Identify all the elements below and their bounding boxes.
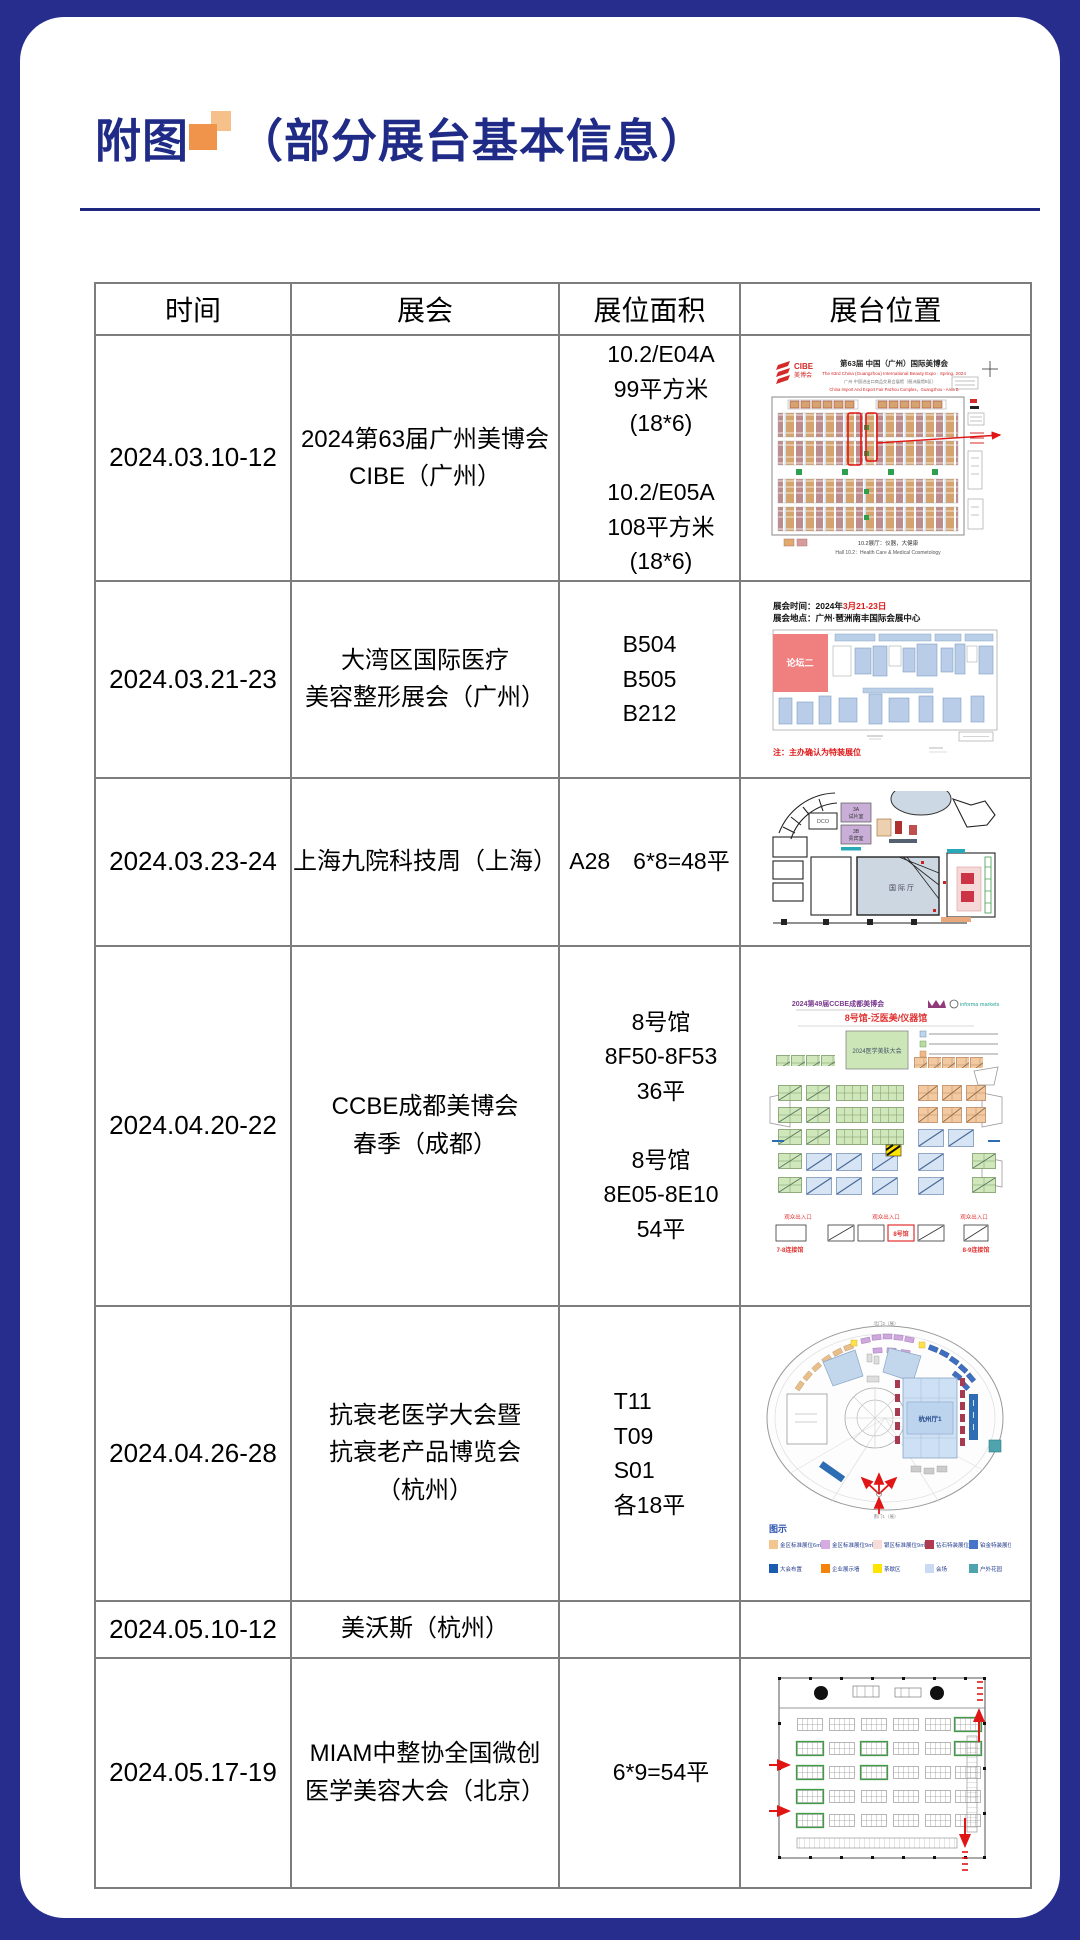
col-header-location: 展台位置: [740, 283, 1031, 335]
cibe-floorplan: CIBE 美博会 第63届 中国（广州）国际美博会 The 63rd China…: [766, 355, 1006, 561]
row4-area: 8号馆 8F50-8F53 36平 8号馆 8E05-8E10 54平: [559, 946, 740, 1306]
left-room: [787, 1394, 827, 1444]
svg-text:3B: 3B: [852, 829, 859, 835]
row6-date: 2024.05.10-12: [95, 1601, 291, 1658]
row7-event: MIAM中整协全国微创 医学美容大会（北京）: [291, 1658, 559, 1888]
row1-floorplan-cell: CIBE 美博会 第63届 中国（广州）国际美博会 The 63rd China…: [740, 335, 1031, 581]
svg-text:10.2展厅：仪器，大健康: 10.2展厅：仪器，大健康: [857, 539, 918, 547]
ninth-floorplan: DCO 3A 试片室 3B 贵宾室: [771, 791, 1001, 933]
table-row: 2024.03.21-23 大湾区国际医疗 美容整形展会（广州） B504 B5…: [95, 581, 1031, 778]
row5-floorplan-cell: 北门2（展）: [740, 1306, 1031, 1601]
compass-icon: [982, 361, 998, 377]
cibe-title: 第63届 中国（广州）国际美博会: [840, 358, 948, 368]
page-title-prefix: 附图: [95, 105, 189, 171]
bottom-piers: [781, 919, 917, 925]
cibe-venue: 广州·中国进出口商品交易会展馆（琶洲展馆B区）: [843, 378, 935, 385]
legend-row-1: 金区标准展位6㎡ 金区标准展位9㎡ 银区标准展位9㎡ 钻石特装展位 铂金特装展位: [769, 1540, 1011, 1549]
main-hall: 国际厅: [857, 857, 939, 915]
svg-text:试片室: 试片室: [848, 813, 863, 820]
ccbe-floorplan: 2024第49届CCBE成都美博会 informa markets 8号馆-泛医…: [768, 997, 1004, 1255]
row3-area: A28 6*8=48平: [559, 778, 740, 946]
plan-legend: 10.2展厅：仪器，大健康 Hall 10.2：Health Care & Me…: [784, 539, 941, 556]
ccbe-title: 2024第49届CCBE成都美博会: [791, 999, 884, 1008]
svg-text:观众出入口: 观众出入口: [872, 1213, 900, 1221]
cibe-logo-icon: CIBE 美博会: [776, 361, 814, 384]
svg-text:贵宾室: 贵宾室: [848, 835, 863, 842]
row2-area: B504 B505 B212: [559, 581, 740, 778]
svg-text:茶歇区: 茶歇区: [884, 1565, 901, 1573]
svg-text:Hall 10.2：Health Care & Medica: Hall 10.2：Health Care & Medical Cosmetol…: [835, 550, 941, 556]
svg-text:南门1（展）: 南门1（展）: [873, 1513, 898, 1520]
svg-text:金区标准展位6㎡: 金区标准展位6㎡: [780, 1541, 822, 1549]
page: { "header": { "title_prefix": "附图", "tit…: [0, 0, 1080, 1940]
row2-floorplan-cell: 展会时间：2024年3月21-23日 展会地点：广州·琶洲南丰国际会展中心 论坛…: [740, 581, 1031, 778]
row5-date: 2024.04.26-28: [95, 1306, 291, 1601]
row3-date: 2024.03.23-24: [95, 778, 291, 946]
row5-area: T11 T09 S01 各18平: [559, 1306, 740, 1601]
svg-text:8-9连接馆: 8-9连接馆: [962, 1246, 989, 1254]
row2-date: 2024.03.21-23: [95, 581, 291, 778]
miam-floorplan: [769, 1672, 1003, 1874]
svg-text:8号馆: 8号馆: [893, 1230, 908, 1238]
booth-info-table: 时间 展会 展位面积 展台位置 2024.03.10-12 2024第63届广州…: [94, 282, 1032, 1889]
bottom-booth-strip: [797, 1838, 957, 1848]
right-booth-strip: [967, 1736, 977, 1832]
room-3a: 3A 试片室: [841, 803, 871, 822]
row6-area: [559, 1601, 740, 1658]
table-row: 2024.05.10-12 美沃斯（杭州）: [95, 1601, 1031, 1658]
svg-text:7-8连接馆: 7-8连接馆: [776, 1246, 803, 1254]
svg-text:3A: 3A: [852, 807, 859, 813]
row4-floorplan-cell: 2024第49届CCBE成都美博会 informa markets 8号馆-泛医…: [740, 946, 1031, 1306]
table-row: 2024.03.23-24 上海九院科技周（上海） A28 6*8=48平: [95, 778, 1031, 946]
svg-text:钻石特装展位: 钻石特装展位: [936, 1541, 970, 1549]
cibe-venue-en: China Import And Export Fair Pazhou Comp…: [829, 387, 958, 393]
row4-event: CCBE成都美博会 春季（成都）: [291, 946, 559, 1306]
table-row: 2024.04.20-22 CCBE成都美博会 春季（成都） 8号馆 8F50-…: [95, 946, 1031, 1306]
top-strips: [835, 634, 993, 641]
table-header-row: 时间 展会 展位面积 展台位置: [95, 283, 1031, 335]
svg-text:银区标准展位9㎡: 银区标准展位9㎡: [884, 1541, 926, 1549]
row1-area: 10.2/E04A 99平方米(18*6) 10.2/E05A 108平方米(1…: [559, 335, 740, 581]
title-accent: [189, 105, 237, 165]
legend-row-2: 大会布置 企业展示墙 茶歇区 会场 户外花园: [769, 1564, 1003, 1573]
page-title-suffix: （部分展台基本信息）: [237, 105, 707, 171]
booth-field: [778, 1085, 995, 1194]
row7-area: 6*9=54平: [559, 1658, 740, 1888]
svg-text:大会布置: 大会布置: [780, 1565, 803, 1573]
table-row: 2024.03.10-12 2024第63届广州美博会 CIBE（广州） 10.…: [95, 335, 1031, 581]
ccbe-legend: [920, 1031, 998, 1057]
row3-floorplan-cell: DCO 3A 试片室 3B 贵宾室: [740, 778, 1031, 946]
antiaging-floorplan: 北门2（展）: [761, 1318, 1011, 1588]
bay-time: 展会时间：2024年3月21-23日: [772, 601, 886, 611]
side-legend: [968, 399, 984, 529]
row3-event: 上海九院科技周（上海）: [291, 778, 559, 946]
row6-floorplan-cell: [740, 1601, 1031, 1658]
svg-text:论坛二: 论坛二: [786, 657, 813, 668]
col-header-area: 展位面积: [559, 283, 740, 335]
svg-text:会场: 会场: [936, 1565, 948, 1573]
svg-text:金区标准展位9㎡: 金区标准展位9㎡: [832, 1541, 874, 1549]
col-header-time: 时间: [95, 283, 291, 335]
page-title: 附图 （部分展台基本信息）: [95, 105, 707, 171]
legend-title: 图示: [769, 1524, 787, 1534]
room-3b: 3B 贵宾室: [841, 825, 871, 844]
cibe-subtitle-en: The 63rd China (Guangzhou) International…: [822, 371, 966, 376]
svg-text:杭州厅1: 杭州厅1: [918, 1414, 942, 1423]
svg-text:铂金特装展位: 铂金特装展位: [980, 1541, 1011, 1549]
row7-floorplan-cell: [740, 1658, 1031, 1888]
right-zone: [941, 849, 991, 922]
row7-date: 2024.05.17-19: [95, 1658, 291, 1888]
svg-text:观众出入口: 观众出入口: [960, 1213, 988, 1221]
svg-text:informa markets: informa markets: [960, 1002, 1000, 1008]
bottom-band: 8号馆: [776, 1225, 988, 1241]
col-header-expo: 展会: [291, 283, 559, 335]
hall-footer-marks: [867, 732, 993, 752]
table-row: 2024.04.26-28 抗衰老医学大会暨 抗衰老产品博览会 （杭州） T11…: [95, 1306, 1031, 1601]
row4-date: 2024.04.20-22: [95, 946, 291, 1306]
bay-floorplan: 展会时间：2024年3月21-23日 展会地点：广州·琶洲南丰国际会展中心 论坛…: [771, 600, 1001, 758]
garden-square: [989, 1440, 1001, 1452]
table-row: 2024.05.17-19 MIAM中整协全国微创 医学美容大会（北京） 6*9…: [95, 1658, 1031, 1888]
ccbe-hall-line: 8号馆-泛医美/仪器馆: [844, 1012, 927, 1023]
hazard-booth: [886, 1145, 901, 1156]
svg-text:美博会: 美博会: [794, 371, 812, 379]
content-sheet: 附图 （部分展台基本信息） 时间 展会 展位面积 展台位置 2024.03.10…: [20, 17, 1060, 1918]
row1-event: 2024第63届广州美博会 CIBE（广州）: [291, 335, 559, 581]
bay-note: 注：主办确认为特装展位: [773, 747, 861, 757]
row5-event: 抗衰老医学大会暨 抗衰老产品博览会 （杭州）: [291, 1306, 559, 1601]
svg-text:CIBE: CIBE: [794, 362, 814, 371]
row6-event: 美沃斯（杭州）: [291, 1601, 559, 1658]
orange-square-dark-icon: [189, 124, 217, 150]
hangzhou-hall: 杭州厅1: [903, 1378, 957, 1458]
svg-text:DCO: DCO: [816, 819, 829, 825]
svg-text:2024医学美肤大会: 2024医学美肤大会: [852, 1047, 901, 1055]
informa-logo-icon: informa markets: [928, 1000, 1000, 1008]
svg-text:企业展示墙: 企业展示墙: [832, 1565, 860, 1573]
row1-date: 2024.03.10-12: [95, 335, 291, 581]
bay-place: 展会地点：广州·琶洲南丰国际会展中心: [772, 613, 921, 623]
svg-text:户外花园: 户外花园: [980, 1565, 1003, 1573]
row2-event: 大湾区国际医疗 美容整形展会（广州）: [291, 581, 559, 778]
svg-text:观众出入口: 观众出入口: [784, 1213, 812, 1221]
svg-text:国际厅: 国际厅: [889, 883, 916, 892]
title-underline: [80, 208, 1040, 211]
